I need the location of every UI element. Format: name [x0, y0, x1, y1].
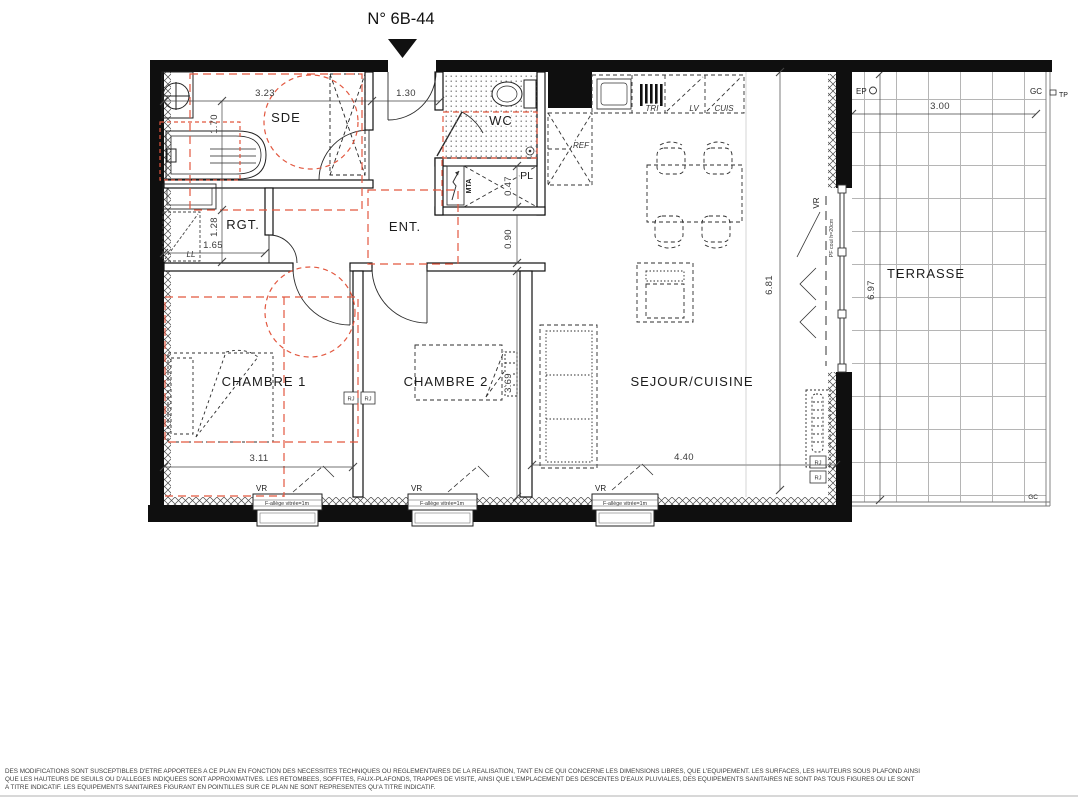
- dim-text-pl-width: 0.47: [503, 176, 514, 196]
- window-note: F-allège vitrée=1m: [265, 501, 310, 507]
- sofa: [540, 325, 597, 468]
- room-label-chambre1: CHAMBRE 1: [222, 374, 307, 389]
- toilet-tank: [524, 80, 536, 108]
- label-ref: REF: [573, 141, 590, 150]
- disclaimer-line2: QUE LES HAUTEURS DE SEUILS OU D'ALLEGES …: [5, 776, 915, 783]
- dining-chair: [704, 142, 732, 174]
- label-ll: LL: [187, 250, 196, 259]
- room-label-sde: SDE: [271, 110, 301, 125]
- entrance-arrow-icon: [388, 39, 417, 58]
- bay-window: [797, 185, 846, 372]
- window-sill: [257, 510, 318, 526]
- label-tp: TP: [1059, 92, 1068, 99]
- tp-symbol-icon: [1050, 90, 1056, 95]
- terrace: TERRASSE 3.00 6.97 EP GC GC TP: [848, 70, 1068, 506]
- label-gc-bottom: GC: [1028, 494, 1038, 501]
- dim-text-sde-height: 1.70: [209, 114, 220, 134]
- room-label-wc: WC: [489, 113, 513, 128]
- sliding-indicator-icon: [800, 306, 816, 338]
- label-rj: RJ: [364, 397, 371, 403]
- window-sejour: F-allège vitrée=1m VR: [592, 464, 658, 526]
- label-tri: TRI: [646, 104, 660, 113]
- rj-outlets: RJ RJ RJ RJ: [344, 392, 826, 483]
- radiator-sejour: [806, 390, 830, 467]
- floor-plan-page: TERRASSE 3.00 6.97 EP GC GC TP: [0, 0, 1078, 800]
- tri-bin-icon: [640, 84, 663, 106]
- label-ep: EP: [856, 87, 867, 96]
- window-sill: [412, 510, 473, 526]
- disclaimer-line1: DES MODIFICATIONS SONT SUSCEPTIBLES D'ET…: [5, 768, 920, 775]
- dim-text-hall-width: 0.90: [503, 229, 514, 249]
- label-vr: VR: [256, 484, 267, 493]
- technical-duct: [330, 74, 365, 175]
- dining-chair: [657, 142, 685, 174]
- sliding-indicator-icon: [800, 268, 816, 300]
- rgt-door-arc: [269, 235, 297, 263]
- window-note: F-allège vitrée=1m: [420, 501, 465, 507]
- label-vr: VR: [595, 484, 606, 493]
- dining-chair: [655, 216, 683, 248]
- label-gc-top: GC: [1030, 87, 1042, 96]
- dim-text-rgt-width: 1.65: [203, 240, 223, 251]
- page-title: N° 6B-44: [367, 10, 434, 28]
- label-mta: MTA: [466, 179, 473, 194]
- label-vr: VR: [411, 484, 422, 493]
- disclaimer-line3: A TITRE INDICATIF. LES EQUIPEMENTS SANIT…: [5, 784, 436, 791]
- bed: [415, 345, 504, 400]
- dim-text-terrasse-height: 6.97: [866, 280, 877, 300]
- room-label-sejour: SEJOUR/CUISINE: [630, 374, 753, 389]
- room-label-pl: PL: [520, 170, 533, 182]
- floor-plan-drawing: TERRASSE 3.00 6.97 EP GC GC TP: [0, 0, 1078, 800]
- dining-chair: [702, 216, 730, 248]
- dim-text-rgt-height: 1.28: [209, 217, 220, 237]
- room-label-terrasse: TERRASSE: [887, 266, 965, 281]
- dim-text-chambre1-width: 3.11: [250, 453, 269, 464]
- window-note: F-allège vitrée=1m: [603, 501, 648, 507]
- room-label-ent: ENT.: [389, 219, 421, 234]
- coffee-table: [637, 263, 693, 322]
- label-lv: LV: [689, 104, 699, 113]
- label-rj: RJ: [814, 476, 821, 482]
- room-label-rgt: RGT.: [226, 217, 260, 232]
- dim-text-chambre2-height: 3.69: [503, 373, 514, 393]
- window-sill: [596, 510, 654, 526]
- room-label-chambre2: CHAMBRE 2: [404, 374, 489, 389]
- dim-text-entry-door: 1.30: [396, 88, 416, 99]
- dim-text-sejour-height: 6.81: [764, 275, 775, 295]
- label-vr-bay: VR: [812, 197, 821, 208]
- dim-text-sde-width: 3.23: [255, 88, 275, 99]
- label-cuis: CUIS: [714, 104, 734, 113]
- dim-text-terrasse-width: 3.00: [930, 101, 950, 112]
- label-bay-note: PF coul h=20cm: [829, 218, 835, 257]
- wardrobe: [168, 350, 273, 442]
- dim-text-sejour-width: 4.40: [674, 452, 694, 463]
- label-rj: RJ: [347, 397, 354, 403]
- chambre2-door-arc: [372, 268, 427, 323]
- label-rj: RJ: [814, 461, 821, 467]
